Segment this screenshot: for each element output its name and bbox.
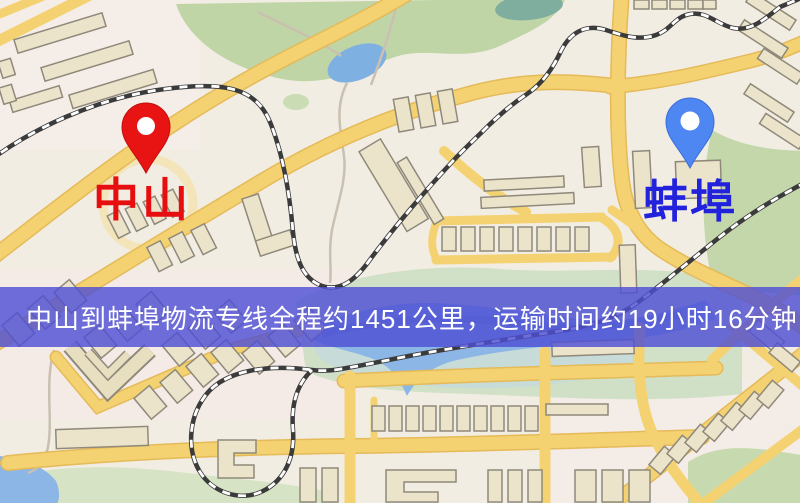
origin-label: 中山 — [93, 177, 191, 223]
destination-label: 蚌埠 — [643, 179, 737, 224]
map-canvas[interactable] — [0, 0, 800, 503]
route-info-banner: 中山到蚌埠物流专线全程约1451公里，运输时间约19小时16分钟. — [0, 287, 800, 347]
map-screenshot: 中山 蚌埠 中山到蚌埠物流专线全程约1451公里，运输时间约19小时16分钟. — [0, 0, 800, 503]
route-summary-text: 中山到蚌埠物流专线全程约1451公里，运输时间约19小时16分钟. — [26, 299, 800, 336]
